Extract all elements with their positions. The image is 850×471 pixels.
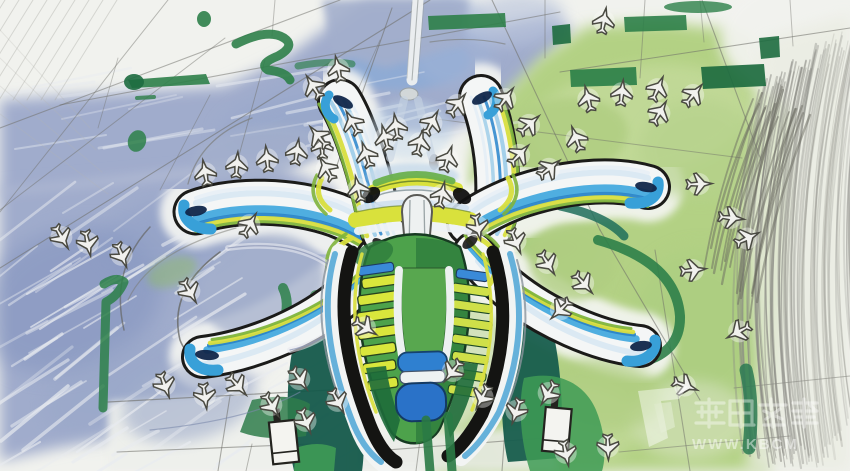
svg-text:WWW.KBCM: WWW.KBCM bbox=[692, 436, 799, 453]
